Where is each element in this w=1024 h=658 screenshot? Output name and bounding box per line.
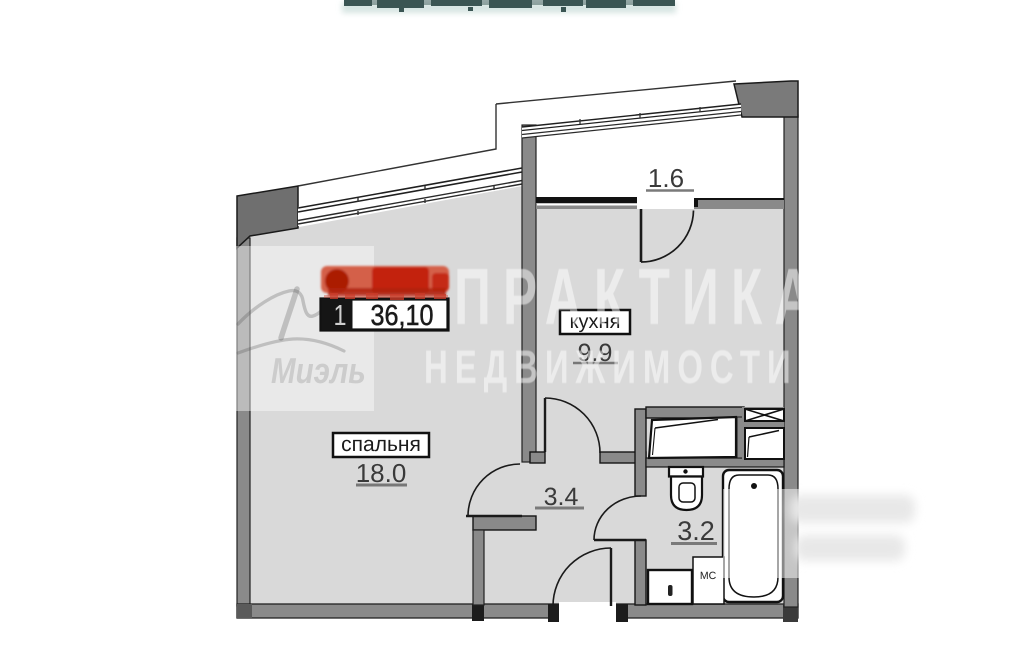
svg-text:Миэль: Миэль (271, 350, 366, 391)
svg-text:спальня: спальня (341, 433, 421, 456)
svg-text:3.2: 3.2 (677, 516, 715, 546)
svg-text:НЕДВИЖИМОСТИ: НЕДВИЖИМОСТИ (424, 340, 798, 393)
svg-text:ПРАКТИКА: ПРАКТИКА (454, 252, 824, 341)
svg-text:МС: МС (700, 570, 717, 582)
svg-text:1: 1 (334, 300, 347, 332)
svg-text:36,10: 36,10 (371, 300, 434, 332)
svg-text:1.6: 1.6 (648, 163, 684, 193)
